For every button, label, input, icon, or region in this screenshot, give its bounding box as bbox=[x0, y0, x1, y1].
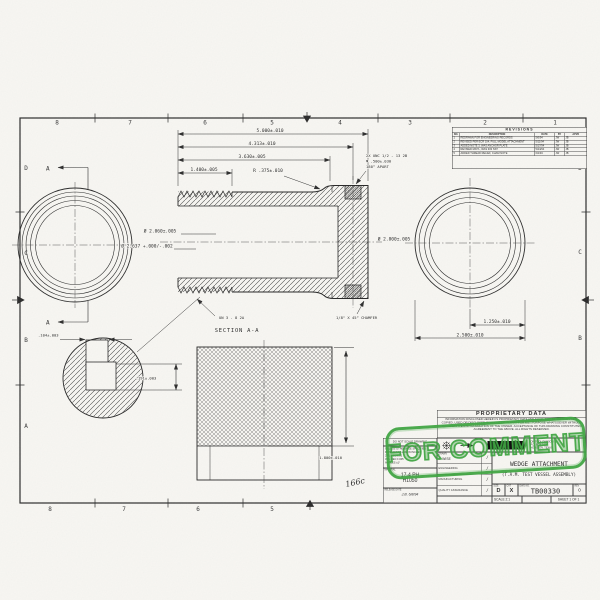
rev-date: 5/11/94 bbox=[535, 140, 555, 143]
extension-lines bbox=[178, 129, 368, 186]
dim-length-to-flange: 3.630±.005 bbox=[238, 154, 265, 160]
note-tapped-holes-1: 2X UNC 1/2 - 13 2B bbox=[366, 153, 408, 158]
rev-apvd: JB bbox=[565, 137, 587, 140]
rev-no: 2 bbox=[453, 140, 460, 143]
dim-body-od: Ø 2.637 +.000/-.002 bbox=[121, 243, 173, 250]
rev-date: 5/17/94 bbox=[535, 144, 555, 147]
zone-label: B bbox=[578, 335, 582, 342]
zone-label: D bbox=[24, 165, 28, 172]
rev-by: JW bbox=[555, 140, 565, 143]
size-cell: SIZE D bbox=[492, 484, 505, 496]
dim-bore-diameter: Ø 2.060±.005 bbox=[144, 228, 177, 235]
rev-by: JW bbox=[555, 152, 565, 155]
rev-no: 4 bbox=[453, 148, 460, 151]
zone-label: A bbox=[24, 423, 28, 430]
rev-apvd: JB bbox=[565, 148, 587, 151]
rev-desc: ADDED NOTE 3, WAS ANCHOR PLATE bbox=[460, 144, 535, 147]
section-cut-label-top: A bbox=[46, 166, 50, 173]
handwritten-note: 166c bbox=[345, 476, 367, 489]
scanned-engineering-drawing: { "stamp": { "label": "FOR COMMENT", "co… bbox=[0, 0, 600, 600]
cat-value: X bbox=[506, 487, 518, 493]
manufacturing-label: MANUFACTURING bbox=[439, 478, 463, 481]
signature-mark: / bbox=[482, 486, 493, 497]
section-title: SECTION A-A bbox=[215, 328, 260, 334]
dwg-no-cell: DWG NO. TB00330 bbox=[518, 484, 573, 496]
rev-desc: REDRAWN FOR ENGINEERING RECORDS bbox=[460, 137, 535, 140]
note-tapped-holes-3: 180° APART bbox=[366, 164, 390, 169]
zone-label: 5 bbox=[270, 120, 274, 127]
rev-date: 5/24/94 bbox=[535, 148, 555, 151]
dim-tooth-depth: .191±.003 bbox=[136, 376, 157, 381]
quality-row: QUALITY ASSURANCE / bbox=[438, 486, 493, 497]
note-tapped-holes-2: ▼ .500±.030 bbox=[366, 159, 392, 164]
right-end-view: 1.250±.010 2.500±.010 bbox=[405, 178, 535, 341]
zone-label: 4 bbox=[338, 120, 342, 127]
rev-apvd: JB bbox=[565, 144, 587, 147]
zone-label: 7 bbox=[128, 120, 132, 127]
size-value: D bbox=[493, 487, 505, 493]
rev-desc: ADDED THREAD RELIEF, CHAM NOTE bbox=[460, 152, 535, 155]
zone-label: 5 bbox=[270, 506, 274, 513]
stamp-text: FOR COMMENT bbox=[385, 427, 586, 468]
rev-by: JW bbox=[555, 137, 565, 140]
thread-detail-view: .104±.003 .191±.003 bbox=[38, 297, 200, 418]
dim-tooth-width: .104±.003 bbox=[38, 333, 59, 338]
zone-label: 1 bbox=[553, 120, 557, 127]
zone-label: 2 bbox=[483, 120, 487, 127]
left-end-view: A A bbox=[12, 166, 138, 327]
zone-label: 6 bbox=[203, 120, 207, 127]
rev-date: 5/6/94 bbox=[535, 137, 555, 140]
revisions-table: REVISIONS NO. DESCRIPTION DATE BY APVD 1… bbox=[452, 127, 587, 169]
rev-value: 0 bbox=[574, 487, 586, 492]
rev-by: JW bbox=[555, 144, 565, 147]
rev-desc: REVISED PER ECR 104, FULL MODEL ATTACHME… bbox=[460, 140, 535, 143]
release-date-cell: RELEASE DATE J.B. 6/8/94 bbox=[383, 488, 437, 503]
rev-date: 6/2/94 bbox=[535, 152, 555, 155]
weight-spacer-cell bbox=[522, 496, 551, 503]
rev-no: 3 bbox=[453, 144, 460, 147]
zone-label: 8 bbox=[48, 506, 52, 513]
dim-hole-spacing: 1.250±.010 bbox=[483, 319, 510, 325]
dwg-no-value: TB00330 bbox=[519, 487, 573, 495]
zone-label: 3 bbox=[408, 120, 412, 127]
section-view: 5.000±.010 4.313±.010 3.630±.005 1.400±.… bbox=[121, 128, 410, 334]
quality-label: QUALITY ASSURANCE bbox=[439, 489, 468, 492]
dim-fillet-radius: R .375±.010 bbox=[253, 168, 283, 174]
release-date-label: RELEASE DATE bbox=[384, 489, 437, 492]
note-thread-spec: UN 3 - 8 2A bbox=[219, 315, 245, 320]
release-date-value: J.B. 6/8/94 bbox=[384, 493, 437, 497]
dim-flange-diameter: 2.500±.010 bbox=[456, 333, 483, 339]
dim-length-to-holes: 4.313±.010 bbox=[248, 141, 275, 147]
scale-cell: SCALE 2:1 bbox=[492, 496, 522, 503]
zone-label: 8 bbox=[55, 120, 59, 127]
zone-label: C bbox=[578, 249, 582, 256]
rev-by: JW bbox=[555, 148, 565, 151]
rev-no: 1 bbox=[453, 137, 460, 140]
signature-mark: / bbox=[482, 475, 493, 486]
rev-no: 5 bbox=[453, 152, 460, 155]
rev-cell: REV 0 bbox=[573, 484, 586, 496]
scale-spacer-cell bbox=[437, 496, 492, 503]
revision-row: 5 ADDED THREAD RELIEF, CHAM NOTE 6/2/94 … bbox=[453, 152, 587, 156]
dim-thread-length: 1.400±.005 bbox=[190, 167, 217, 173]
dim-thread-length-side: 1.800±.010 bbox=[319, 455, 343, 460]
cat-cell: CAT X bbox=[505, 484, 518, 496]
rev-apvd: JB bbox=[565, 140, 587, 143]
zone-label: 6 bbox=[196, 506, 200, 513]
zone-label: B bbox=[24, 337, 28, 344]
zone-label: 7 bbox=[122, 506, 126, 513]
drawing-title-line2: (T.A.M. TEST VESSEL ASSEMBLY) bbox=[493, 473, 586, 478]
dim-flange-od: Ø 2.800±.005 bbox=[378, 236, 411, 243]
rev-apvd: JB bbox=[565, 152, 587, 155]
rev-desc: REVISED MAT'L, WAS 303 SST bbox=[460, 148, 535, 151]
side-elevation-view: 1.800±.010 bbox=[197, 340, 354, 489]
note-chamfer: 1/8" X 45° CHAMFER bbox=[336, 315, 378, 320]
drawing-sheet: 8 7 6 5 4 3 2 1 8 7 6 5 D C B A D C B bbox=[0, 0, 600, 600]
section-cut-label-bottom: A bbox=[46, 320, 50, 327]
sheet-cell: SHEET 1 OF 1 bbox=[551, 496, 586, 503]
dim-overall-length: 5.000±.010 bbox=[256, 128, 283, 134]
